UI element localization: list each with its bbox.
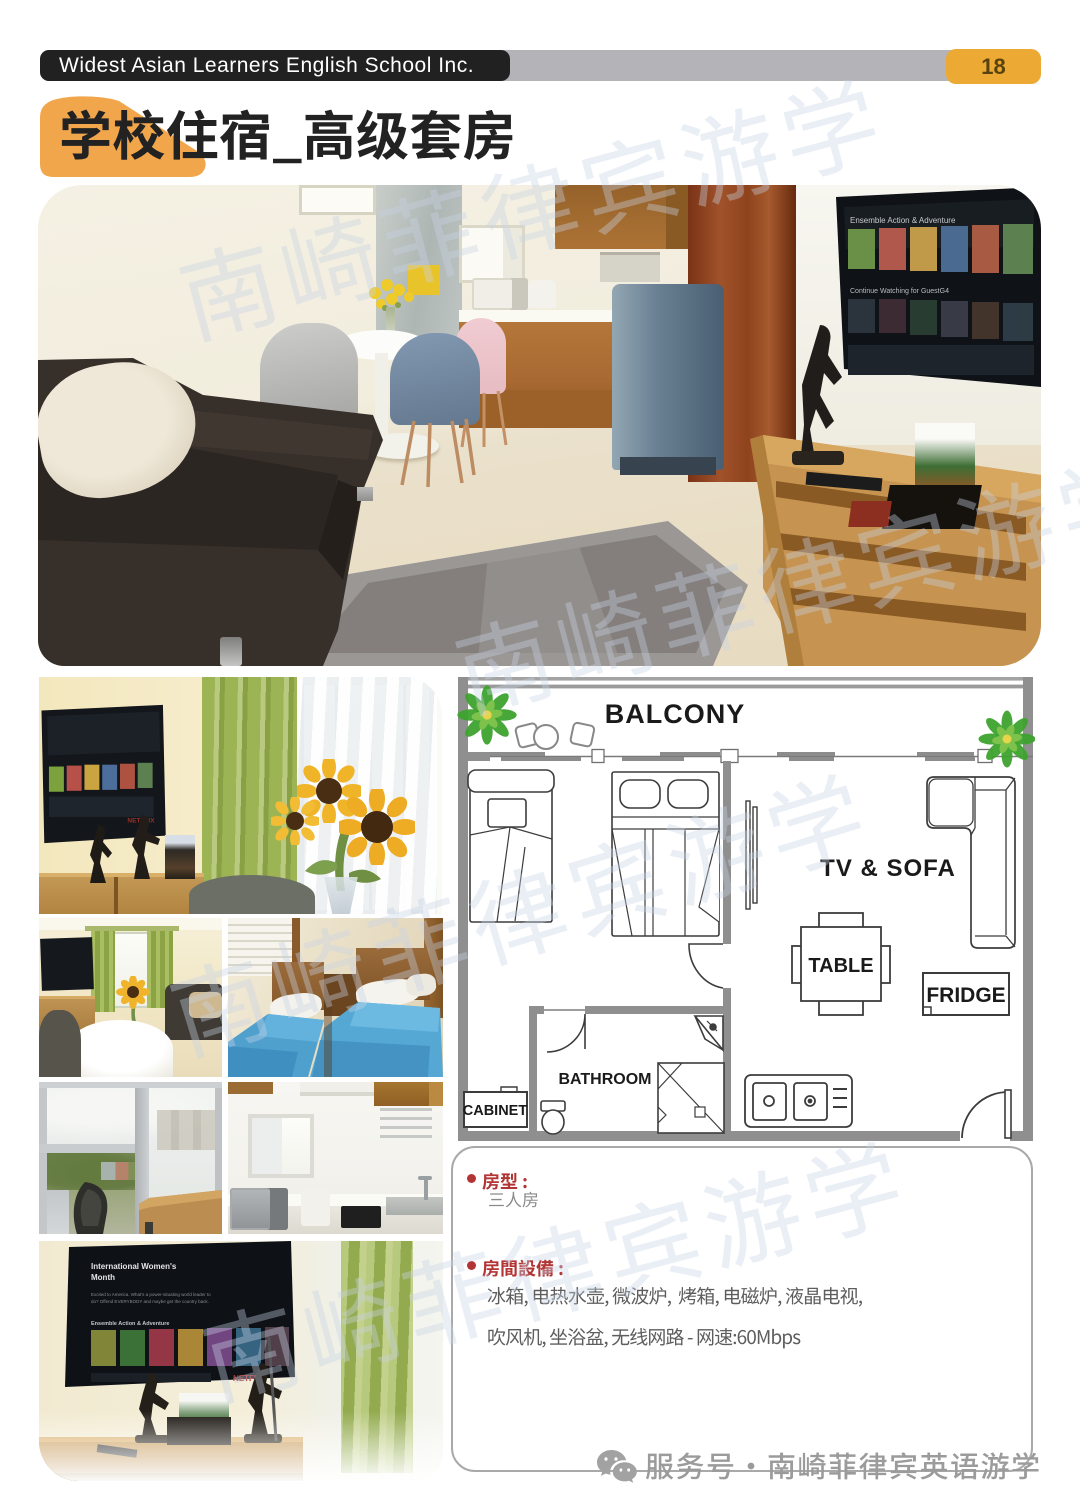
svg-text:Ensemble Action & Adventure: Ensemble Action & Adventure — [850, 216, 956, 225]
svg-text:Continue Watching for GuestG4: Continue Watching for GuestG4 — [850, 288, 949, 295]
svg-text:CABINET: CABINET — [463, 1103, 528, 1119]
svg-text:International Women's: International Women's — [91, 1262, 177, 1271]
svg-text:BATHROOM: BATHROOM — [558, 1071, 651, 1088]
svg-text:Month: Month — [91, 1273, 115, 1282]
svg-text:BALCONY: BALCONY — [605, 699, 746, 729]
svg-text:Ensemble Action & Adventure: Ensemble Action & Adventure — [91, 1321, 169, 1327]
svg-text:Excited to America. What's a p: Excited to America. What's a power-situa… — [91, 1292, 211, 1297]
svg-text:FRIDGE: FRIDGE — [926, 984, 1005, 1007]
svg-text:TABLE: TABLE — [808, 955, 873, 977]
svg-text:do? Offend EVERYBODY and maybe: do? Offend EVERYBODY and maybe get the c… — [91, 1299, 209, 1304]
svg-text:TV & SOFA: TV & SOFA — [820, 855, 956, 882]
